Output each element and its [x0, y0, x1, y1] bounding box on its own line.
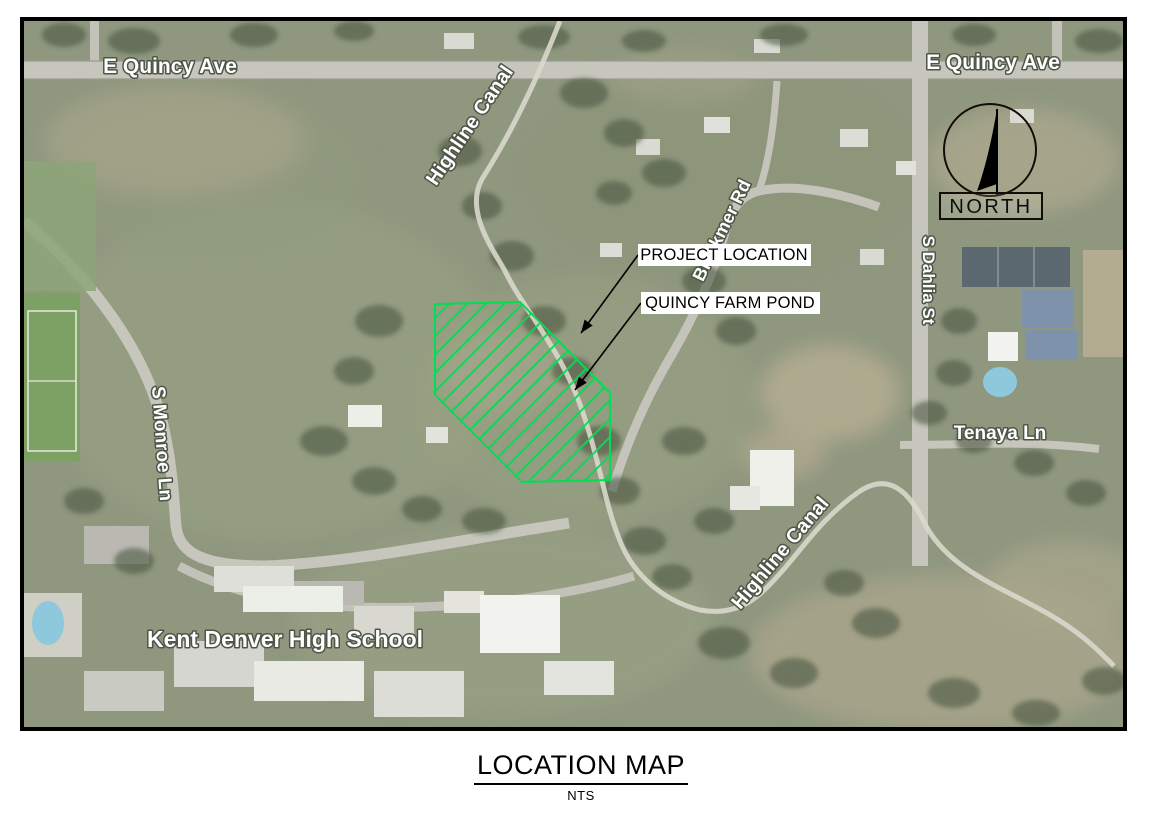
street-label-tenaya-ln: Tenaya Ln	[954, 423, 1047, 444]
title-block: LOCATION MAP NTS	[0, 750, 1162, 803]
aerial-map-canvas: E Quincy Ave E Quincy Ave Highline Canal…	[24, 21, 1123, 727]
callout-labels: PROJECT LOCATION QUINCY FARM POND	[638, 244, 820, 314]
scale-note: NTS	[0, 788, 1162, 803]
place-label-kent-denver-high-school: Kent Denver High School	[147, 626, 423, 652]
page-title: LOCATION MAP	[474, 750, 688, 785]
street-label-highline-canal-top: Highline Canal	[422, 62, 518, 189]
street-label-s-dahlia-st: S Dahlia St	[919, 236, 938, 325]
street-label-e-quincy-ave-left: E Quincy Ave	[103, 55, 237, 78]
aerial-map: E Quincy Ave E Quincy Ave Highline Canal…	[20, 17, 1127, 731]
project-location-label: PROJECT LOCATION	[640, 246, 808, 264]
street-label-e-quincy-ave-right: E Quincy Ave	[926, 51, 1060, 74]
north-label: NORTH	[949, 196, 1032, 218]
quincy-farm-pond-label: QUINCY FARM POND	[645, 294, 815, 312]
